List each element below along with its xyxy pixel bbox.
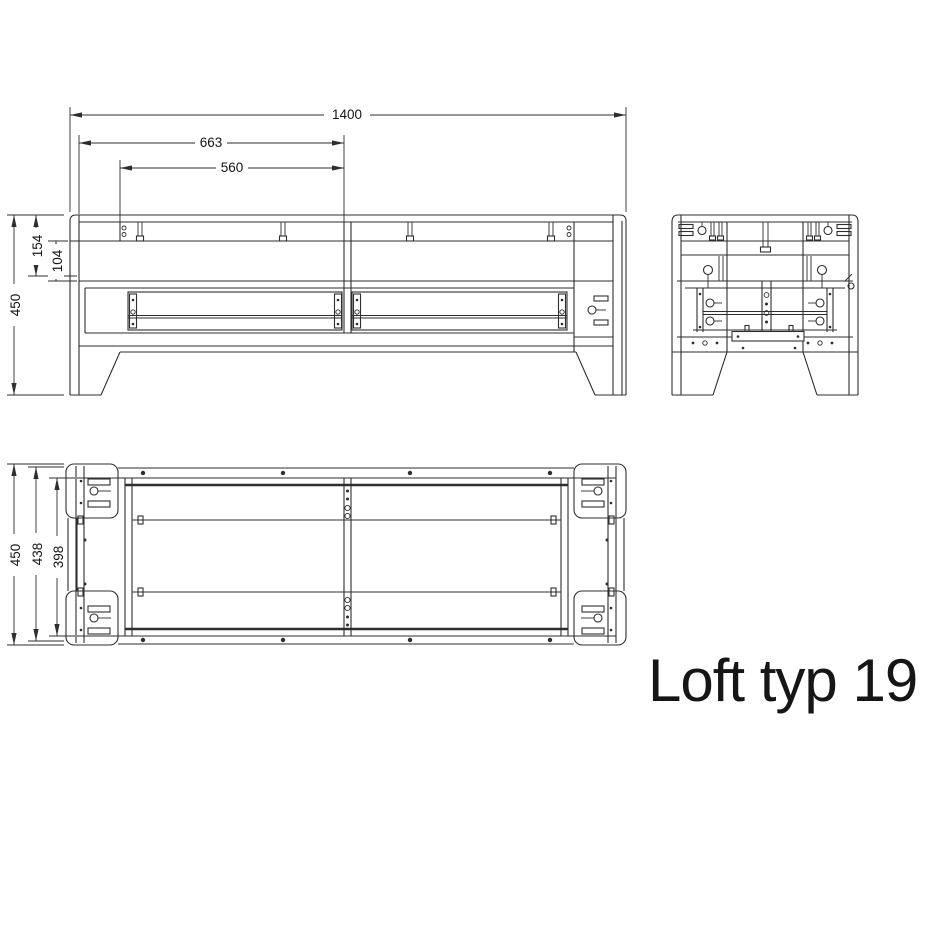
dim-rail-span: 398 (51, 546, 66, 569)
dim-left-to-center: 663 (200, 135, 223, 150)
leg-block-hardware (80, 479, 613, 634)
dim-inner-depth: 438 (30, 543, 45, 566)
front-view (70, 215, 626, 395)
middle-assembly (697, 274, 854, 337)
dim-top-section: 154 (30, 234, 45, 257)
rail-dowel-feet (137, 236, 555, 241)
top-band-hardware (679, 222, 851, 252)
drawing-sheet: 1400 663 560 450 154 104 450 438 398 Lof… (0, 0, 940, 940)
top-view (66, 464, 626, 645)
dim-total-height: 450 (8, 294, 23, 317)
center-divider-holes (345, 490, 350, 627)
rail-dowels (78, 516, 614, 596)
mid-bolts (704, 256, 827, 288)
rail-screw-holes (122, 226, 571, 237)
drawer-slide-left (128, 292, 342, 330)
drawer-slide-right (352, 292, 567, 330)
edge-screws (84, 471, 609, 642)
technical-drawing: 1400 663 560 450 154 104 450 438 398 (0, 0, 940, 940)
side-view (672, 215, 858, 395)
dim-rail-to-shelf: 104 (50, 249, 65, 272)
dim-total-depth: 450 (8, 544, 23, 567)
dim-total-width: 1400 (332, 107, 362, 122)
top-view-dimensions: 450 438 398 (6, 464, 75, 645)
drawing-title: Loft typ 19 (648, 648, 940, 714)
dim-post-to-center: 560 (221, 160, 244, 175)
end-fitting-hardware (588, 296, 608, 325)
